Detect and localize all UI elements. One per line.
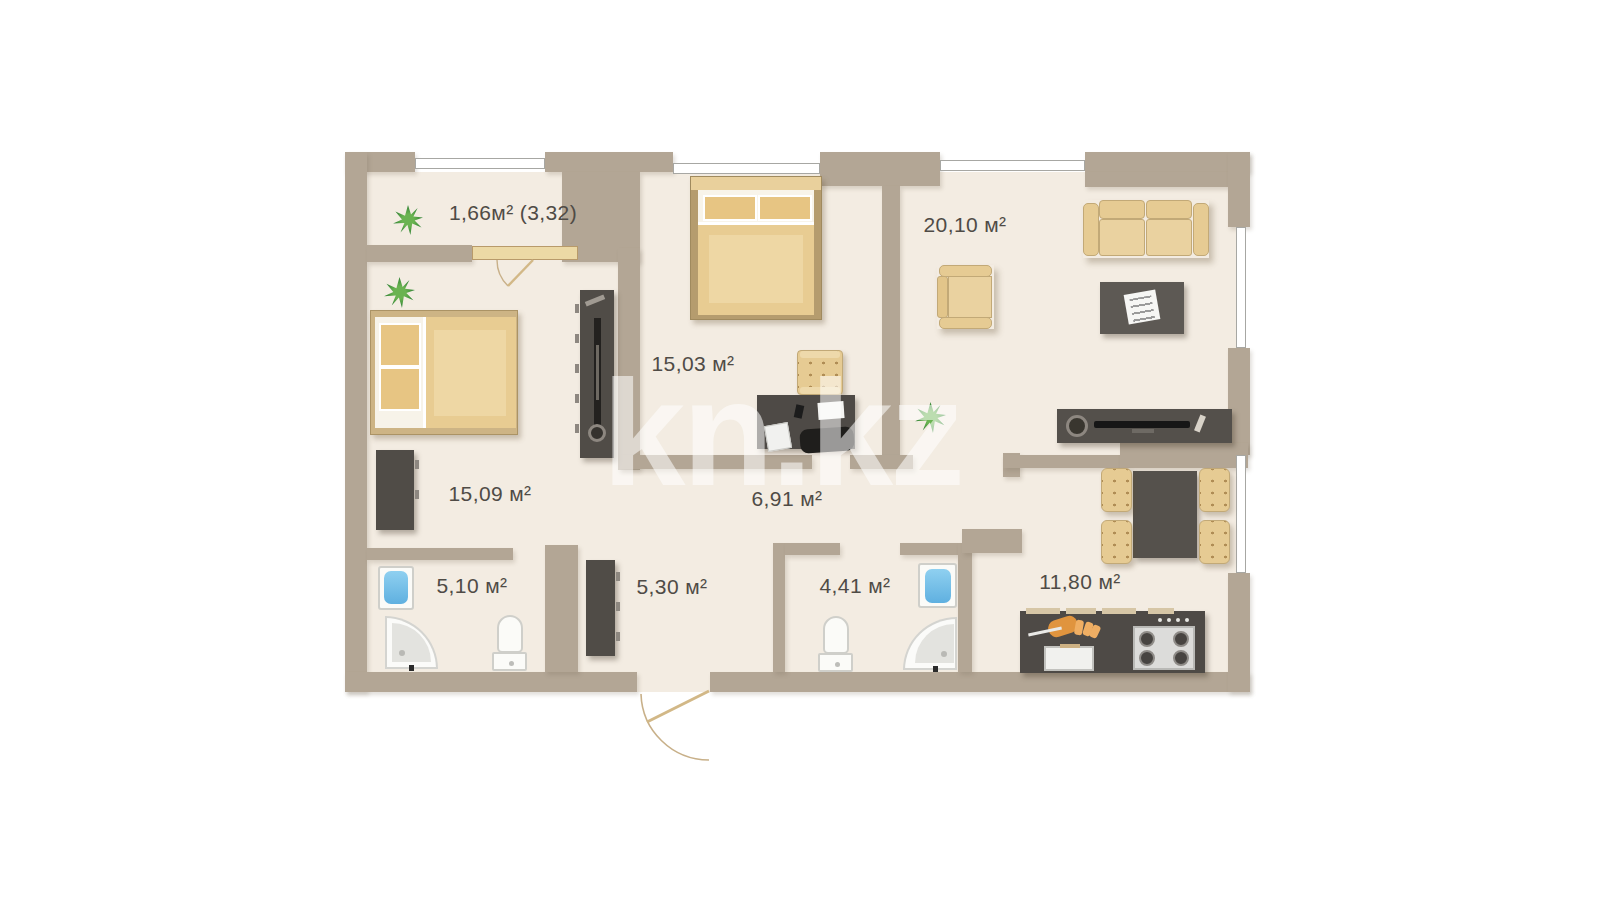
floor-plan: 1,66м² (3,32) 15,09 м² 15,03 м² 20,10 м²… (0, 0, 1600, 900)
room-label-bedroom-left: 15,09 м² (448, 482, 531, 506)
room-label-kitchen: 11,80 м² (1039, 570, 1120, 594)
room-label-hallway: 5,30 м² (637, 575, 708, 599)
room-label-bathroom-right: 4,41 м² (820, 574, 891, 598)
watermark: kn.kz (602, 347, 962, 520)
room-label-balcony: 1,66м² (3,32) (449, 201, 577, 225)
room-label-bathroom-left: 5,10 м² (437, 574, 508, 598)
room-label-living-room: 20,10 м² (923, 213, 1006, 237)
